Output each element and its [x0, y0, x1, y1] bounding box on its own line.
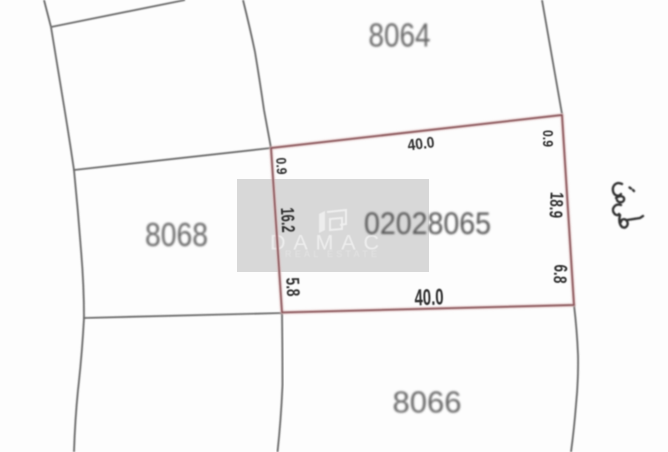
svg-text:18.9: 18.9 [545, 192, 566, 219]
svg-text:8066: 8066 [393, 385, 462, 420]
svg-text:40.0: 40.0 [407, 134, 436, 154]
svg-text:5.8: 5.8 [282, 277, 303, 297]
svg-text:6.8: 6.8 [550, 264, 571, 284]
svg-text:REAL ESTATE: REAL ESTATE [285, 249, 377, 259]
svg-text:0.9: 0.9 [539, 130, 556, 147]
svg-text:40.0: 40.0 [414, 284, 444, 311]
svg-text:02028065: 02028065 [364, 205, 491, 241]
svg-text:0.9: 0.9 [272, 157, 290, 175]
svg-text:8068: 8068 [145, 216, 208, 253]
svg-text:8064: 8064 [369, 16, 431, 53]
svg-text:16.2: 16.2 [277, 207, 298, 233]
